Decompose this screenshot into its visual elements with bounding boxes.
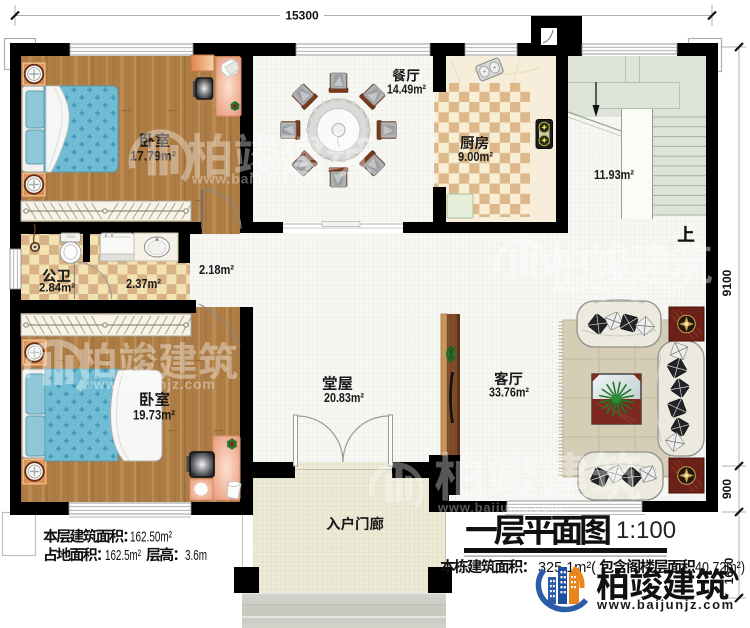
svg-text:33.76m²: 33.76m² [489, 386, 529, 400]
svg-text:19.73m²: 19.73m² [133, 408, 175, 423]
svg-text:2.37m²: 2.37m² [126, 277, 161, 291]
svg-text:9100: 9100 [720, 269, 734, 296]
svg-text:14.49m²: 14.49m² [387, 83, 426, 97]
svg-text:162.50m²: 162.50m² [130, 529, 172, 546]
svg-text:www.baijunjz.com: www.baijunjz.com [81, 376, 216, 392]
svg-text:1:100: 1:100 [616, 517, 676, 544]
svg-text:www.baijunjz.com: www.baijunjz.com [596, 597, 735, 612]
svg-text:www.baijunjz.com: www.baijunjz.com [437, 500, 563, 515]
svg-text:900: 900 [720, 479, 734, 499]
svg-text:3.6m: 3.6m [185, 547, 207, 564]
svg-text:www.baijunjz.com: www.baijunjz.com [191, 171, 326, 187]
svg-text:162.5m²: 162.5m² [105, 547, 141, 564]
svg-text:2.84m²: 2.84m² [39, 281, 75, 295]
svg-text:15300: 15300 [285, 9, 319, 23]
svg-text:www.baijunjz.com: www.baijunjz.com [551, 280, 686, 296]
svg-text:20.83m²: 20.83m² [324, 391, 364, 405]
svg-text:11.93m²: 11.93m² [594, 168, 634, 182]
svg-text:9.00m²: 9.00m² [458, 150, 493, 164]
svg-text:2.18m²: 2.18m² [199, 263, 234, 277]
